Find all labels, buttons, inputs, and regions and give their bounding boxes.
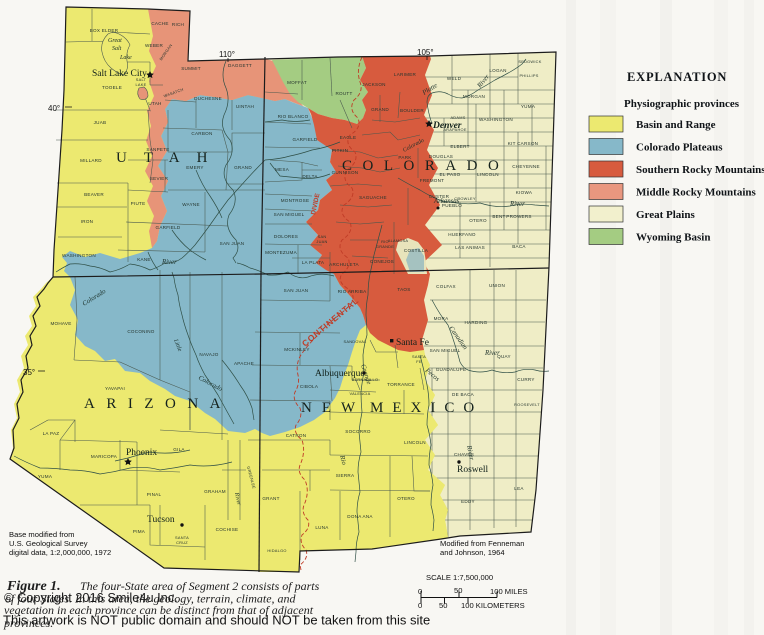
svg-text:JACKSON: JACKSON (362, 82, 385, 87)
svg-text:EAGLE: EAGLE (340, 135, 357, 140)
svg-text:ADAMS: ADAMS (450, 115, 465, 120)
svg-text:YUMA: YUMA (521, 104, 536, 109)
svg-text:HIDALGO: HIDALGO (267, 548, 286, 553)
svg-text:PINAL: PINAL (147, 492, 162, 497)
svg-text:BOULDER: BOULDER (400, 108, 424, 113)
svg-text:© Copyright 2016 Smile4u Inc.: © Copyright 2016 Smile4u Inc. (4, 590, 178, 605)
svg-text:U.S. Geological Survey: U.S. Geological Survey (9, 539, 88, 548)
svg-text:LAKE: LAKE (136, 82, 147, 87)
svg-text:LUNA: LUNA (315, 525, 329, 530)
svg-text:Phoenix: Phoenix (126, 448, 157, 458)
svg-text:SUMMIT: SUMMIT (181, 66, 201, 71)
svg-text:NAVAJO: NAVAJO (199, 352, 218, 357)
svg-text:35°: 35° (23, 368, 35, 377)
svg-text:Great Plains: Great Plains (636, 209, 695, 221)
svg-text:KIT CARSON: KIT CARSON (508, 141, 539, 146)
svg-text:SIERRA: SIERRA (336, 473, 355, 478)
svg-text:BEAVER: BEAVER (84, 192, 104, 197)
svg-text:COSTILLA: COSTILLA (404, 248, 429, 253)
svg-text:Arkansas: Arkansas (433, 198, 460, 205)
svg-text:RIO ARRIBA: RIO ARRIBA (338, 289, 367, 294)
svg-text:BOX ELDER: BOX ELDER (90, 28, 119, 33)
svg-text:100 KILOMETERS: 100 KILOMETERS (461, 601, 525, 610)
svg-text:Denver: Denver (432, 121, 462, 131)
svg-text:50: 50 (439, 601, 447, 610)
svg-text:KIOWA: KIOWA (516, 190, 533, 195)
svg-text:WASHINGTON: WASHINGTON (479, 117, 513, 122)
svg-text:EXPLANATION: EXPLANATION (627, 70, 727, 84)
svg-text:GRAND: GRAND (234, 165, 252, 170)
svg-text:This artwork is NOT public dom: This artwork is NOT public domain and sh… (3, 613, 430, 628)
svg-text:CRUZ: CRUZ (176, 540, 188, 545)
svg-text:DONA ANA: DONA ANA (347, 514, 373, 519)
svg-text:ARCHULETA: ARCHULETA (329, 262, 359, 267)
svg-text:Salt Lake City: Salt Lake City (92, 69, 147, 79)
svg-text:and Johnson, 1964: and Johnson, 1964 (440, 548, 505, 557)
svg-text:110°: 110° (219, 50, 235, 59)
svg-text:River: River (509, 201, 525, 208)
svg-text:GRANDE: GRANDE (376, 244, 394, 249)
svg-text:SANDOVAL: SANDOVAL (344, 339, 367, 344)
svg-text:Roswell: Roswell (457, 465, 489, 475)
svg-text:HARDING: HARDING (465, 320, 488, 325)
svg-text:OTERO: OTERO (397, 496, 415, 501)
svg-text:VALENCIA: VALENCIA (350, 391, 371, 396)
svg-text:CARBON: CARBON (191, 131, 212, 136)
svg-text:0: 0 (418, 587, 422, 596)
svg-text:MORGAN: MORGAN (463, 94, 485, 99)
svg-text:ARIZONA: ARIZONA (84, 396, 232, 412)
svg-text:SOCORRO: SOCORRO (345, 429, 371, 434)
svg-text:CHEYENNE: CHEYENNE (512, 164, 540, 169)
svg-text:JUAN: JUAN (316, 239, 327, 244)
svg-text:MOFFAT: MOFFAT (287, 80, 307, 85)
svg-text:Middle Rocky Mountains: Middle Rocky Mountains (636, 187, 757, 199)
svg-text:PHILLIPS: PHILLIPS (519, 73, 538, 78)
svg-text:Physiographic provinces: Physiographic provinces (624, 98, 740, 110)
svg-text:ELBERT: ELBERT (450, 144, 469, 149)
svg-text:PIMA: PIMA (133, 529, 146, 534)
svg-text:NEW: NEW (301, 400, 365, 416)
svg-text:LAS ANIMAS: LAS ANIMAS (455, 245, 485, 250)
svg-text:HUERFANO: HUERFANO (448, 232, 476, 237)
svg-text:CURRY: CURRY (517, 377, 535, 382)
svg-text:GARFIELD: GARFIELD (293, 137, 318, 142)
svg-text:MONTROSE: MONTROSE (281, 198, 310, 203)
svg-text:OTERO: OTERO (469, 218, 487, 223)
svg-text:COLORADO: COLORADO (342, 158, 509, 174)
svg-text:BENT: BENT (492, 214, 505, 219)
svg-text:Tucson: Tucson (147, 515, 175, 525)
svg-text:APACHE: APACHE (234, 361, 254, 366)
svg-text:EDDY: EDDY (461, 499, 475, 504)
svg-text:COCONINO: COCONINO (127, 329, 154, 334)
svg-text:MESA: MESA (275, 167, 290, 172)
svg-text:COCHISE: COCHISE (216, 527, 239, 532)
svg-text:SCALE 1:7,500,000: SCALE 1:7,500,000 (426, 573, 493, 582)
svg-text:WELD: WELD (447, 76, 462, 81)
svg-text:PROWERS: PROWERS (506, 214, 532, 219)
svg-text:GRAND: GRAND (371, 107, 389, 112)
svg-text:DELTA: DELTA (302, 174, 318, 179)
svg-text:MARICOPA: MARICOPA (91, 454, 118, 459)
svg-text:RIO BLANCO: RIO BLANCO (278, 114, 309, 119)
svg-text:BACA: BACA (512, 244, 526, 249)
svg-text:0: 0 (418, 601, 422, 610)
svg-text:COLFAX: COLFAX (436, 284, 456, 289)
svg-text:IRON: IRON (81, 219, 93, 224)
svg-text:SAN JUAN: SAN JUAN (284, 288, 309, 293)
svg-text:MEXICO: MEXICO (370, 400, 483, 416)
svg-text:LA PAZ: LA PAZ (43, 431, 60, 436)
svg-text:SEDGWICK: SEDGWICK (518, 59, 541, 64)
svg-text:GARFIELD: GARFIELD (156, 225, 181, 230)
svg-text:DUCHESNE: DUCHESNE (194, 96, 222, 101)
svg-text:Great: Great (108, 38, 122, 44)
svg-text:TORRANCE: TORRANCE (387, 382, 415, 387)
svg-text:RICH: RICH (172, 22, 184, 27)
svg-text:PIUTE: PIUTE (131, 201, 146, 206)
svg-text:SAN MIGUEL: SAN MIGUEL (274, 212, 305, 217)
svg-text:UINTAH: UINTAH (236, 104, 254, 109)
svg-text:WASHINGTON: WASHINGTON (62, 253, 96, 258)
svg-text:Modified from Fenneman: Modified from Fenneman (440, 539, 524, 548)
svg-text:MORA: MORA (434, 316, 449, 321)
svg-text:GRANT: GRANT (262, 496, 279, 501)
svg-text:50: 50 (454, 586, 462, 595)
svg-text:SAN JUAN: SAN JUAN (220, 241, 245, 246)
svg-text:digital data, 1:2,000,000, 197: digital data, 1:2,000,000, 1972 (9, 548, 111, 557)
svg-text:Colorado Plateaus: Colorado Plateaus (636, 142, 723, 154)
svg-text:River: River (161, 259, 177, 266)
svg-text:LARIMER: LARIMER (394, 72, 417, 77)
svg-text:100 MILES: 100 MILES (490, 587, 528, 596)
svg-text:DE BACA: DE BACA (452, 392, 475, 397)
svg-text:LEA: LEA (514, 486, 524, 491)
svg-text:LINCOLN: LINCOLN (404, 440, 426, 445)
svg-text:JUAB: JUAB (94, 120, 107, 125)
svg-text:MONTEZUMA: MONTEZUMA (265, 250, 298, 255)
svg-text:ROOSEVELT: ROOSEVELT (514, 402, 540, 407)
svg-text:SAGUACHE: SAGUACHE (359, 195, 387, 200)
svg-text:FREMONT: FREMONT (420, 178, 444, 183)
svg-text:Santa Fe: Santa Fe (396, 338, 429, 348)
svg-text:105°: 105° (417, 48, 434, 57)
svg-text:LOGAN: LOGAN (489, 68, 506, 73)
svg-text:UTAH: UTAH (116, 150, 224, 166)
svg-text:River: River (484, 350, 500, 357)
svg-text:Lake: Lake (119, 55, 132, 61)
svg-text:YUMA: YUMA (38, 474, 53, 479)
svg-text:DAGGETT: DAGGETT (228, 63, 252, 68)
svg-text:UNION: UNION (489, 283, 505, 288)
svg-text:CATRON: CATRON (286, 433, 307, 438)
svg-text:GRAHAM: GRAHAM (204, 489, 226, 494)
svg-text:FE: FE (416, 359, 422, 364)
svg-text:MILLARD: MILLARD (80, 158, 102, 163)
svg-text:TOOELE: TOOELE (102, 85, 122, 90)
svg-text:WAYNE: WAYNE (182, 202, 200, 207)
svg-text:Albuquerque: Albuquerque (315, 369, 365, 379)
svg-text:WEBER: WEBER (145, 43, 164, 48)
svg-text:CIBOLA: CIBOLA (300, 384, 319, 389)
svg-text:SEVIER: SEVIER (150, 176, 169, 181)
svg-text:YAVAPAI: YAVAPAI (105, 386, 125, 391)
svg-text:TAOS: TAOS (397, 287, 410, 292)
svg-text:SAN MIGUEL: SAN MIGUEL (430, 348, 461, 353)
svg-text:40°: 40° (48, 104, 60, 113)
svg-text:Southern Rocky Mountains: Southern Rocky Mountains (636, 164, 764, 176)
svg-text:CACHE: CACHE (151, 21, 168, 26)
svg-text:ROUTT: ROUTT (335, 91, 352, 96)
svg-text:ALAMOSA: ALAMOSA (388, 238, 409, 243)
svg-text:GILA: GILA (173, 447, 185, 452)
svg-text:PITKIN: PITKIN (332, 148, 348, 153)
svg-text:MOHAVE: MOHAVE (50, 321, 71, 326)
svg-text:CONEJOS: CONEJOS (370, 259, 394, 264)
svg-text:DOLORES: DOLORES (274, 234, 298, 239)
svg-text:KANE: KANE (137, 257, 151, 262)
svg-text:Salt: Salt (112, 46, 122, 52)
svg-text:Wyoming Basin: Wyoming Basin (636, 232, 710, 244)
svg-text:UTAH: UTAH (148, 101, 161, 106)
svg-text:LA PLATA: LA PLATA (302, 260, 325, 265)
svg-text:Basin and Range: Basin and Range (636, 119, 716, 131)
svg-text:GUADALUPE: GUADALUPE (436, 367, 467, 372)
svg-text:Base modified from: Base modified from (9, 530, 74, 539)
